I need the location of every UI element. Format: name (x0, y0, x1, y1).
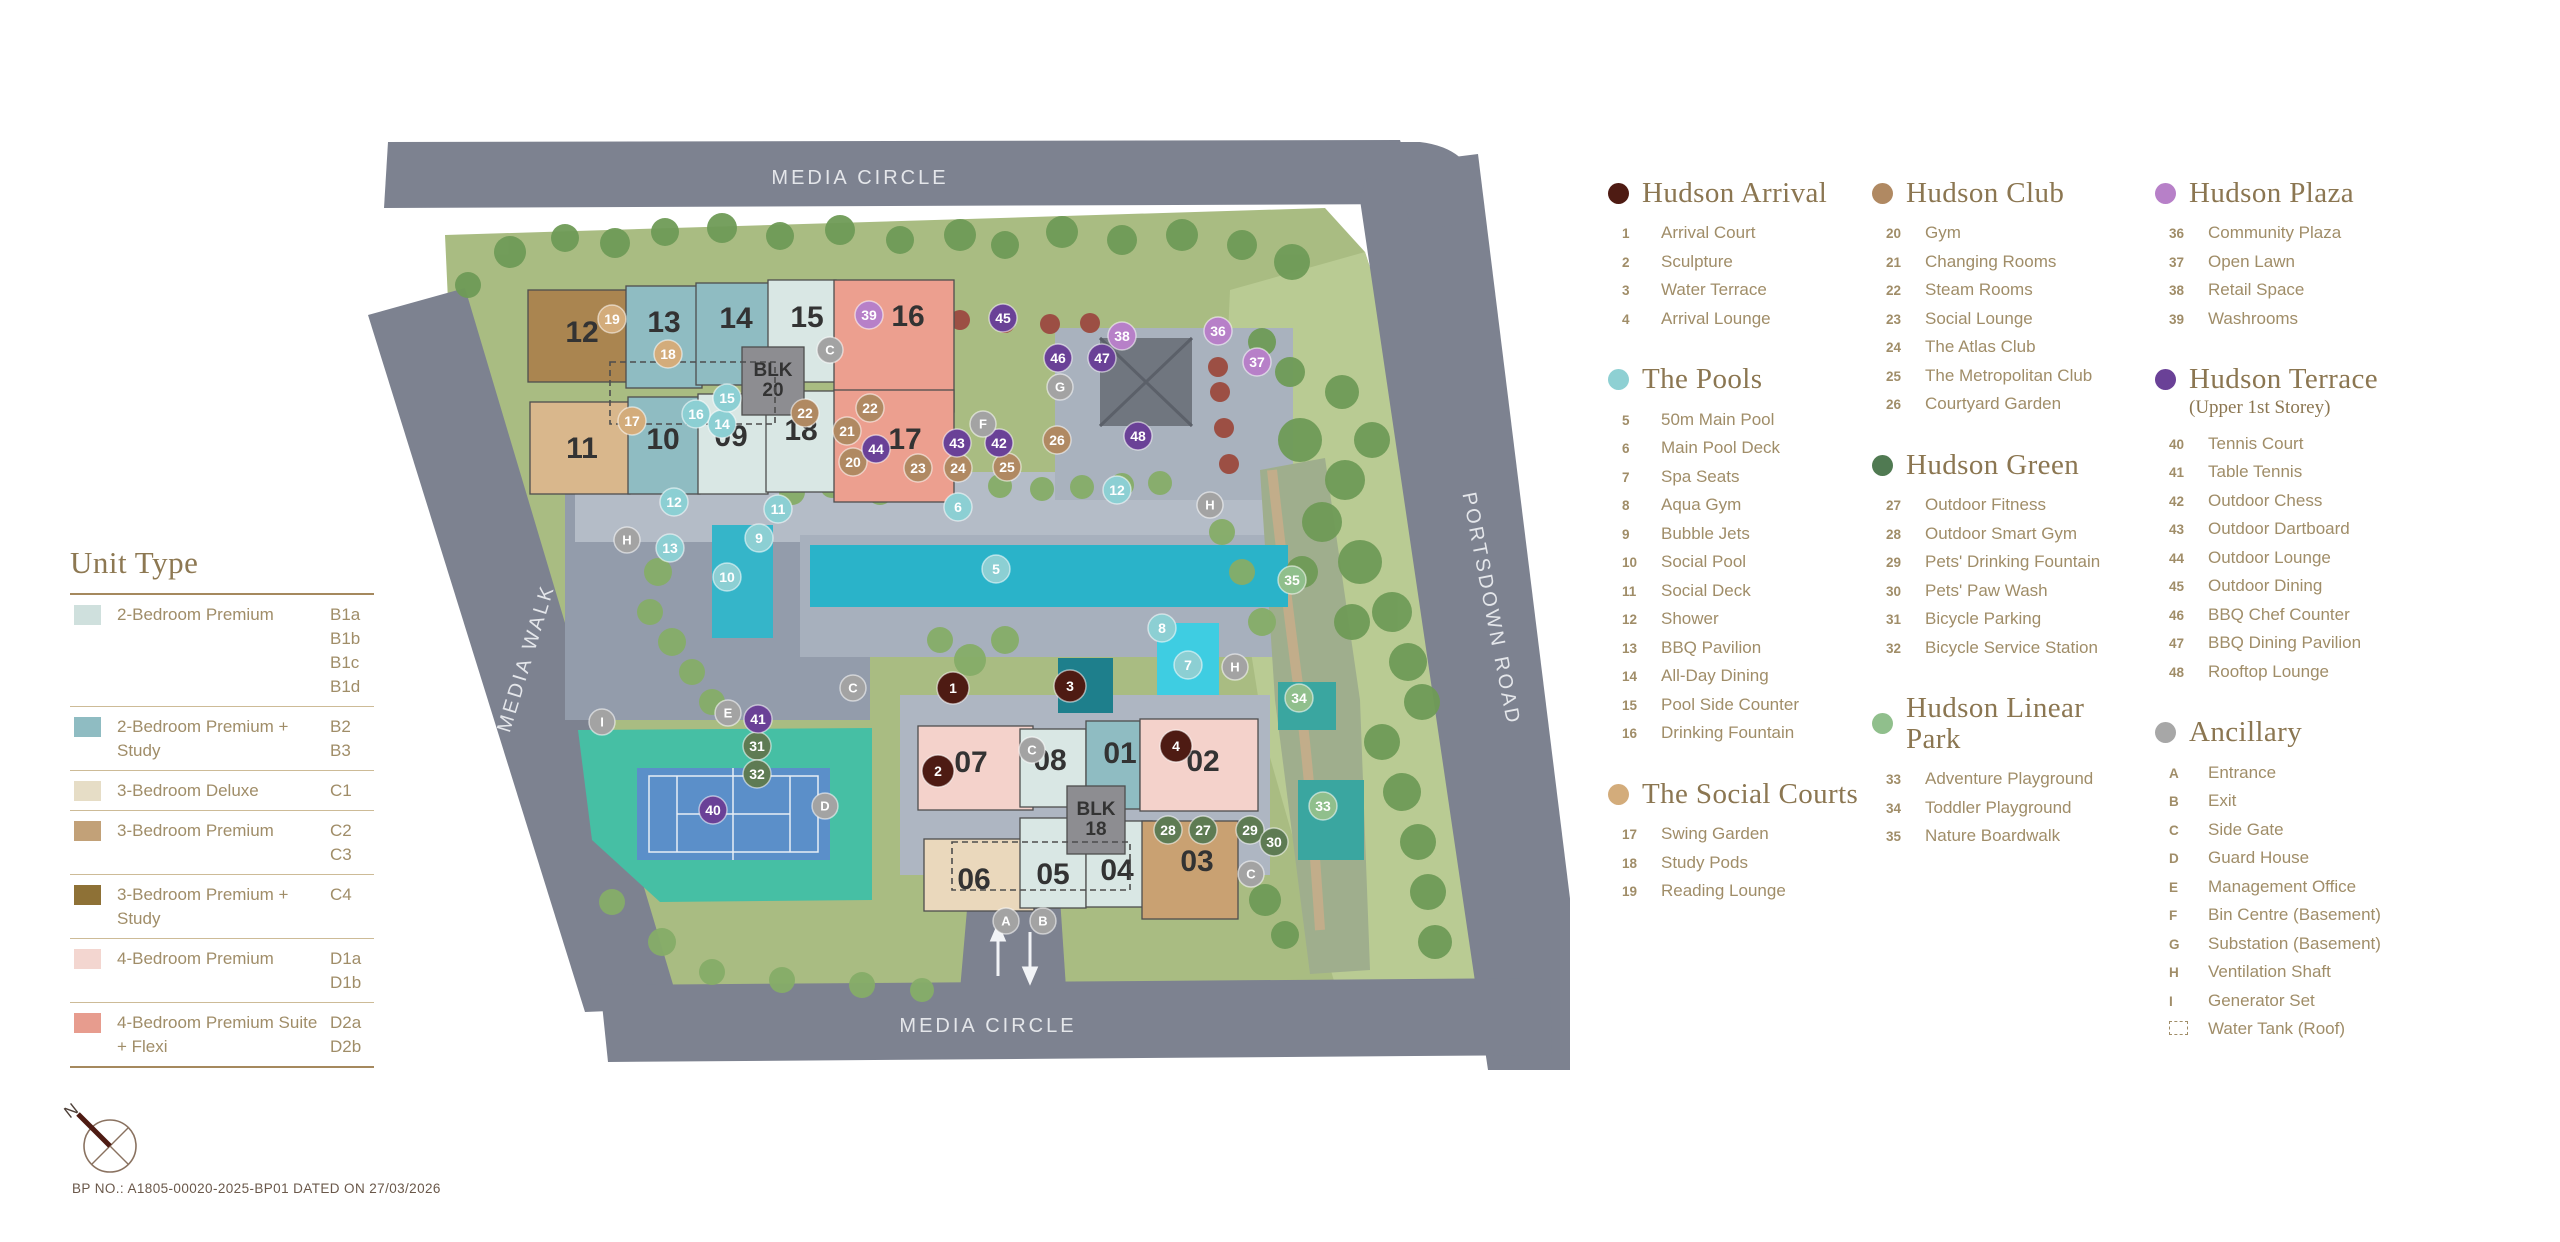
map-marker-12: 12 (1103, 476, 1131, 504)
legend-item-key: I (2169, 994, 2208, 1009)
svg-text:14: 14 (714, 416, 730, 432)
legend-item-key: 41 (2169, 465, 2208, 480)
legend-item-key: 17 (1622, 827, 1661, 842)
legend-item-label: Social Pool (1661, 552, 1746, 572)
unit-type-codes: C2C3 (330, 819, 374, 867)
legend-item-42: 42Outdoor Chess (2169, 491, 2500, 520)
unit-type-row-B2: 2-Bedroom Premium + StudyB2B3 (70, 707, 374, 771)
legend-column-2: Hudson Club20Gym21Changing Rooms22Steam … (1872, 178, 2144, 882)
svg-text:12: 12 (666, 494, 682, 510)
map-marker-31: 31 (743, 732, 771, 760)
legend-item-C: CSide Gate (2169, 820, 2500, 849)
svg-text:47: 47 (1094, 350, 1110, 366)
legend-item-key: 11 (1622, 584, 1661, 599)
legend-item-key: B (2169, 794, 2208, 809)
building-label-BLK18: 18 (1085, 819, 1106, 840)
legend-item-key: 27 (1886, 498, 1925, 513)
legend-item-label: Management Office (2208, 877, 2356, 897)
unit-type-row-C2: 3-Bedroom PremiumC2C3 (70, 811, 374, 875)
legend-dot (1608, 784, 1629, 805)
svg-text:32: 32 (749, 766, 765, 782)
unit-type-label: 3-Bedroom Deluxe (117, 779, 330, 803)
legend-item-key: H (2169, 965, 2208, 980)
legend-item-9: 9Bubble Jets (1622, 524, 1860, 553)
building-label-15: 15 (790, 301, 823, 334)
legend-item-label: Aqua Gym (1661, 495, 1741, 515)
legend-item-label: Pets' Paw Wash (1925, 581, 2048, 601)
svg-text:1: 1 (949, 680, 957, 696)
map-marker-44: 44 (862, 435, 890, 463)
legend-item-label: Spa Seats (1661, 467, 1739, 487)
legend-item-key: 33 (1886, 772, 1925, 787)
legend-item-31: 31Bicycle Parking (1886, 609, 2144, 638)
legend-item-label: Side Gate (2208, 820, 2284, 840)
building-label-12: 12 (565, 316, 598, 349)
legend-item-label: Water Tank (Roof) (2208, 1019, 2345, 1039)
site-plan-page: 121314151611100918170708010206050403BLK2… (0, 0, 2560, 1242)
svg-text:41: 41 (750, 711, 766, 727)
svg-text:37: 37 (1249, 354, 1265, 370)
svg-text:16: 16 (688, 406, 704, 422)
legend-item-key: 45 (2169, 579, 2208, 594)
svg-text:28: 28 (1160, 822, 1176, 838)
map-marker-33: 33 (1309, 792, 1337, 820)
legend-item-19: 19Reading Lounge (1622, 881, 1860, 910)
legend-item-12: 12Shower (1622, 609, 1860, 638)
building-label-01: 01 (1103, 737, 1136, 770)
legend-item-label: Outdoor Smart Gym (1925, 524, 2077, 544)
legend-group-hudson-linear-park: Hudson Linear Park33Adventure Playground… (1872, 693, 2144, 854)
map-marker-12: 12 (660, 488, 688, 516)
map-marker-11: 11 (764, 495, 792, 523)
svg-text:2: 2 (934, 763, 942, 779)
svg-text:C: C (848, 681, 858, 696)
map-marker-39: 39 (855, 301, 883, 329)
map-marker-C: C (817, 337, 843, 363)
legend-item-key: 46 (2169, 608, 2208, 623)
unit-type-label: 4-Bedroom Premium Suite + Flexi (117, 1011, 330, 1059)
legend-item-label: Retail Space (2208, 280, 2304, 300)
map-marker-45: 45 (989, 304, 1017, 332)
legend-item-key: 34 (1886, 801, 1925, 816)
building-label-05: 05 (1036, 858, 1069, 891)
legend-column-1: Hudson Arrival1Arrival Court2Sculpture3W… (1608, 178, 1860, 937)
svg-text:35: 35 (1284, 572, 1300, 588)
legend-item-45: 45Outdoor Dining (2169, 576, 2500, 605)
map-marker-H: H (1197, 492, 1223, 518)
unit-color-swatch (74, 781, 101, 801)
legend-item-43: 43Outdoor Dartboard (2169, 519, 2500, 548)
legend-item-label: Study Pods (1661, 853, 1748, 873)
legend-item-key: 13 (1622, 641, 1661, 656)
legend-item-label: Social Lounge (1925, 309, 2033, 329)
legend-item-14: 14All-Day Dining (1622, 666, 1860, 695)
legend-item-label: Generator Set (2208, 991, 2315, 1011)
map-marker-9: 9 (745, 524, 773, 552)
site-plan-map: 121314151611100918170708010206050403BLK2… (360, 140, 1570, 1070)
legend-dot (1872, 183, 1893, 204)
svg-text:9: 9 (755, 530, 763, 546)
map-marker-E: E (715, 700, 741, 726)
legend-dot (1872, 455, 1893, 476)
road-label-media-circle-top: MEDIA CIRCLE (771, 167, 948, 189)
map-marker-4: 4 (1160, 730, 1192, 762)
legend-dot (1608, 369, 1629, 390)
legend-item-key: 18 (1622, 856, 1661, 871)
legend-item-17: 17Swing Garden (1622, 824, 1860, 853)
unit-type-codes: D2aD2b (330, 1011, 374, 1059)
unit-color-swatch (74, 1013, 101, 1033)
map-marker-34: 34 (1285, 684, 1313, 712)
legend-item-30: 30Pets' Paw Wash (1886, 581, 2144, 610)
unit-type-row-D2a: 4-Bedroom Premium Suite + FlexiD2aD2b (70, 1003, 374, 1066)
svg-text:26: 26 (1049, 432, 1065, 448)
svg-text:H: H (1230, 660, 1239, 675)
svg-text:A: A (1001, 914, 1011, 929)
svg-text:30: 30 (1266, 834, 1282, 850)
legend-group-ancillary: AncillaryAEntranceBExitCSide GateDGuard … (2155, 717, 2500, 1047)
legend-item-key: 24 (1886, 340, 1925, 355)
unit-color-swatch (74, 885, 101, 905)
legend-item-label: The Metropolitan Club (1925, 366, 2092, 386)
legend-item-key: 1 (1622, 226, 1661, 241)
legend-item-key: C (2169, 823, 2208, 838)
legend-item-key: 36 (2169, 226, 2208, 241)
building-label-13: 13 (647, 306, 680, 339)
bp-number-note: BP NO.: A1805-00020-2025-BP01 DATED ON 2… (72, 1181, 441, 1196)
legend-group-title: Ancillary (2189, 717, 2302, 747)
legend-item-key: 23 (1886, 312, 1925, 327)
legend-item-key: 30 (1886, 584, 1925, 599)
legend-group-title: Hudson Plaza (2189, 178, 2354, 208)
legend-item-key: A (2169, 766, 2208, 781)
legend-item-B: BExit (2169, 791, 2500, 820)
legend-item-label: Changing Rooms (1925, 252, 2056, 272)
legend-item-label: Pets' Drinking Fountain (1925, 552, 2100, 572)
legend-item-label: Community Plaza (2208, 223, 2341, 243)
map-marker-D: D (812, 793, 838, 819)
legend-column-3: Hudson Plaza36Community Plaza37Open Lawn… (2155, 178, 2500, 1075)
legend-item-7: 7Spa Seats (1622, 467, 1860, 496)
legend-item-label: Table Tennis (2208, 462, 2302, 482)
svg-text:18: 18 (660, 346, 676, 362)
legend-item-label: Toddler Playground (1925, 798, 2071, 818)
map-marker-10: 10 (713, 563, 741, 591)
legend-item-key: 42 (2169, 494, 2208, 509)
legend-item-label: BBQ Dining Pavilion (2208, 633, 2361, 653)
map-marker-2: 2 (922, 755, 954, 787)
svg-text:H: H (622, 533, 631, 548)
legend-item-35: 35Nature Boardwalk (1886, 826, 2144, 855)
map-marker-19: 19 (598, 305, 626, 333)
map-marker-G: G (1047, 374, 1073, 400)
legend-group-hudson-plaza: Hudson Plaza36Community Plaza37Open Lawn… (2155, 178, 2500, 337)
legend-item-label: The Atlas Club (1925, 337, 2036, 357)
map-marker-14: 14 (708, 410, 736, 438)
svg-text:45: 45 (995, 310, 1011, 326)
legend-item-label: Washrooms (2208, 309, 2298, 329)
legend-item-label: Gym (1925, 223, 1961, 243)
svg-text:I: I (600, 715, 604, 730)
map-marker-47: 47 (1088, 344, 1116, 372)
legend-dot (1872, 713, 1893, 734)
building-label-04: 04 (1100, 854, 1134, 887)
legend-item-key: 3 (1622, 283, 1661, 298)
legend-item-label: Substation (Basement) (2208, 934, 2381, 954)
legend-group-title: The Social Courts (1642, 779, 1858, 809)
legend-group-subtitle: (Upper 1st Storey) (2189, 397, 2500, 419)
legend-dot (2155, 722, 2176, 743)
legend-group-title: Hudson Linear Park (1906, 693, 2144, 754)
svg-text:10: 10 (719, 569, 735, 585)
svg-text:40: 40 (705, 802, 721, 818)
legend-item-40: 40Tennis Court (2169, 434, 2500, 463)
map-marker-B: B (1030, 908, 1056, 934)
north-compass: N (62, 1096, 162, 1186)
legend-item-44: 44Outdoor Lounge (2169, 548, 2500, 577)
legend-item-key: 22 (1886, 283, 1925, 298)
legend-item-key: 26 (1886, 397, 1925, 412)
legend-item-key: 25 (1886, 369, 1925, 384)
unit-type-codes: D1aD1b (330, 947, 374, 995)
legend-item-key: 20 (1886, 226, 1925, 241)
svg-text:7: 7 (1184, 657, 1192, 673)
unit-type-row-C4: 3-Bedroom Premium + StudyC4 (70, 875, 374, 939)
legend-item-21: 21Changing Rooms (1886, 252, 2144, 281)
legend-item-10: 10Social Pool (1622, 552, 1860, 581)
map-marker-C: C (1238, 861, 1264, 887)
legend-item-4: 4Arrival Lounge (1622, 309, 1860, 338)
legend-item-key: 2 (1622, 255, 1661, 270)
legend-item-label: Outdoor Lounge (2208, 548, 2331, 568)
map-marker-17: 17 (618, 407, 646, 435)
legend-item-label: Bicycle Service Station (1925, 638, 2098, 658)
legend-item-key: 32 (1886, 641, 1925, 656)
water-tank-dashed-icon (2169, 1021, 2188, 1035)
svg-text:3: 3 (1066, 678, 1074, 694)
legend-item-key: 5 (1622, 413, 1661, 428)
svg-text:6: 6 (954, 499, 962, 515)
map-marker-7: 7 (1174, 651, 1202, 679)
legend-item-key: 15 (1622, 698, 1661, 713)
building-label-07: 07 (954, 746, 987, 779)
unit-color-swatch (74, 717, 101, 737)
legend-item-3: 3Water Terrace (1622, 280, 1860, 309)
legend-item-label: Main Pool Deck (1661, 438, 1780, 458)
legend-item-key: 28 (1886, 527, 1925, 542)
map-marker-21: 21 (833, 417, 861, 445)
legend-item-label: Ventilation Shaft (2208, 962, 2331, 982)
legend-item-label: BBQ Chef Counter (2208, 605, 2350, 625)
legend-item-2: 2Sculpture (1622, 252, 1860, 281)
map-marker-28: 28 (1154, 816, 1182, 844)
legend-item-key: 10 (1622, 555, 1661, 570)
map-marker-3: 3 (1054, 670, 1086, 702)
svg-text:H: H (1205, 498, 1214, 513)
legend-item-24: 24The Atlas Club (1886, 337, 2144, 366)
legend-item-25: 25The Metropolitan Club (1886, 366, 2144, 395)
map-marker-26: 26 (1043, 426, 1071, 454)
legend-item-key: 31 (1886, 612, 1925, 627)
svg-text:B: B (1038, 914, 1047, 929)
map-marker-13: 13 (656, 534, 684, 562)
legend-item-H: HVentilation Shaft (2169, 962, 2500, 991)
svg-text:33: 33 (1315, 798, 1331, 814)
legend-item-label: Sculpture (1661, 252, 1733, 272)
legend-item-27: 27Outdoor Fitness (1886, 495, 2144, 524)
legend-item-label: Outdoor Dartboard (2208, 519, 2350, 539)
legend-item-key: 21 (1886, 255, 1925, 270)
legend-group-title: The Pools (1642, 364, 1762, 394)
legend-group-the-social-courts: The Social Courts17Swing Garden18Study P… (1608, 779, 1860, 910)
legend-item-key (2169, 1020, 2208, 1037)
legend-item-key: 35 (1886, 829, 1925, 844)
legend-item-48: 48Rooftop Lounge (2169, 662, 2500, 691)
legend-item-46: 46BBQ Chef Counter (2169, 605, 2500, 634)
svg-text:G: G (1055, 380, 1065, 395)
legend-item-6: 6Main Pool Deck (1622, 438, 1860, 467)
legend-item-label: Steam Rooms (1925, 280, 2033, 300)
legend-item-29: 29Pets' Drinking Fountain (1886, 552, 2144, 581)
svg-text:5: 5 (992, 561, 1000, 577)
svg-text:19: 19 (604, 311, 620, 327)
legend-item-13: 13BBQ Pavilion (1622, 638, 1860, 667)
map-marker-27: 27 (1189, 816, 1217, 844)
legend-item-key: 19 (1622, 884, 1661, 899)
legend-item-label: Entrance (2208, 763, 2276, 783)
legend-item-label: Reading Lounge (1661, 881, 1786, 901)
building-label-BLK20: 20 (762, 380, 783, 401)
legend-item-38: 38Retail Space (2169, 280, 2500, 309)
legend-item-key: 44 (2169, 551, 2208, 566)
legend-item-key: 40 (2169, 437, 2208, 452)
legend-item-label: Drinking Fountain (1661, 723, 1794, 743)
legend-item-36: 36Community Plaza (2169, 223, 2500, 252)
svg-text:11: 11 (771, 501, 786, 517)
legend-item-label: Pool Side Counter (1661, 695, 1799, 715)
legend-item-1: 1Arrival Court (1622, 223, 1860, 252)
legend-item-G: GSubstation (Basement) (2169, 934, 2500, 963)
legend-item-41: 41Table Tennis (2169, 462, 2500, 491)
building-label-14: 14 (719, 302, 753, 335)
legend-item-22: 22Steam Rooms (1886, 280, 2144, 309)
unit-type-label: 2-Bedroom Premium (117, 603, 330, 627)
unit-type-codes: C1 (330, 779, 374, 803)
legend-item-label: Guard House (2208, 848, 2309, 868)
legend-item-47: 47BBQ Dining Pavilion (2169, 633, 2500, 662)
road-label-media-circle-bottom: MEDIA CIRCLE (899, 1015, 1076, 1037)
legend-item-key: 12 (1622, 612, 1661, 627)
svg-text:D: D (820, 799, 829, 814)
legend-item-label: Bubble Jets (1661, 524, 1750, 544)
legend-item-water-tank: Water Tank (Roof) (2169, 1019, 2500, 1048)
legend-group-hudson-arrival: Hudson Arrival1Arrival Court2Sculpture3W… (1608, 178, 1860, 337)
legend-group-title: Hudson Club (1906, 178, 2064, 208)
svg-text:13: 13 (662, 540, 678, 556)
unit-type-title: Unit Type (70, 545, 374, 581)
svg-text:C: C (1027, 743, 1037, 758)
svg-text:42: 42 (991, 435, 1007, 451)
legend-item-15: 15Pool Side Counter (1622, 695, 1860, 724)
building-label-11: 11 (566, 432, 598, 465)
unit-type-row-C1: 3-Bedroom DeluxeC1 (70, 771, 374, 811)
svg-text:C: C (1246, 867, 1256, 882)
map-marker-F: F (970, 411, 996, 437)
legend-item-label: Water Terrace (1661, 280, 1767, 300)
svg-text:22: 22 (862, 400, 878, 416)
legend-item-label: Exit (2208, 791, 2236, 811)
legend-item-key: 16 (1622, 726, 1661, 741)
svg-text:8: 8 (1158, 620, 1166, 636)
legend-item-label: Nature Boardwalk (1925, 826, 2060, 846)
legend-item-label: Open Lawn (2208, 252, 2295, 272)
legend-item-label: Courtyard Garden (1925, 394, 2061, 414)
legend-dot (2155, 183, 2176, 204)
legend-group-hudson-green: Hudson Green27Outdoor Fitness28Outdoor S… (1872, 450, 2144, 666)
legend-item-label: Arrival Lounge (1661, 309, 1771, 329)
map-marker-A: A (993, 908, 1019, 934)
legend-item-label: Shower (1661, 609, 1719, 629)
svg-text:31: 31 (749, 738, 765, 754)
legend-item-label: 50m Main Pool (1661, 410, 1774, 430)
unit-type-label: 3-Bedroom Premium (117, 819, 330, 843)
svg-text:22: 22 (797, 405, 813, 421)
legend-group-title: Hudson Arrival (1642, 178, 1827, 208)
legend-item-8: 8Aqua Gym (1622, 495, 1860, 524)
legend-item-key: E (2169, 880, 2208, 895)
map-marker-35: 35 (1278, 566, 1306, 594)
map-marker-38: 38 (1108, 322, 1136, 350)
compass-needle (78, 1114, 110, 1146)
legend-group-title: Hudson Terrace (2189, 364, 2378, 394)
legend-item-key: 37 (2169, 255, 2208, 270)
map-marker-32: 32 (743, 760, 771, 788)
svg-text:29: 29 (1242, 822, 1258, 838)
legend-dot (2155, 369, 2176, 390)
unit-color-swatch (74, 605, 101, 625)
map-marker-40: 40 (699, 796, 727, 824)
legend-item-key: 8 (1622, 498, 1661, 513)
unit-type-codes: B2B3 (330, 715, 374, 763)
legend-item-label: All-Day Dining (1661, 666, 1769, 686)
legend-item-key: 6 (1622, 441, 1661, 456)
legend-item-key: 38 (2169, 283, 2208, 298)
map-marker-15: 15 (713, 384, 741, 412)
legend-item-label: Bicycle Parking (1925, 609, 2041, 629)
building-label-BLK20: BLK (753, 360, 792, 381)
map-marker-37: 37 (1243, 348, 1271, 376)
map-marker-22: 22 (791, 399, 819, 427)
map-marker-H: H (614, 527, 640, 553)
svg-text:24: 24 (950, 460, 966, 476)
legend-item-11: 11Social Deck (1622, 581, 1860, 610)
svg-text:C: C (825, 343, 835, 358)
map-marker-1: 1 (937, 672, 969, 704)
map-marker-8: 8 (1148, 614, 1176, 642)
unit-color-swatch (74, 821, 101, 841)
map-marker-46: 46 (1044, 344, 1072, 372)
legend-item-key: 4 (1622, 312, 1661, 327)
legend-item-I: IGenerator Set (2169, 991, 2500, 1020)
legend-item-label: Bin Centre (Basement) (2208, 905, 2381, 925)
map-marker-C: C (840, 675, 866, 701)
legend-item-key: 48 (2169, 665, 2208, 680)
main-pool (810, 545, 1288, 607)
svg-text:23: 23 (910, 460, 926, 476)
map-marker-22: 22 (856, 394, 884, 422)
map-marker-43: 43 (943, 429, 971, 457)
legend-item-28: 28Outdoor Smart Gym (1886, 524, 2144, 553)
